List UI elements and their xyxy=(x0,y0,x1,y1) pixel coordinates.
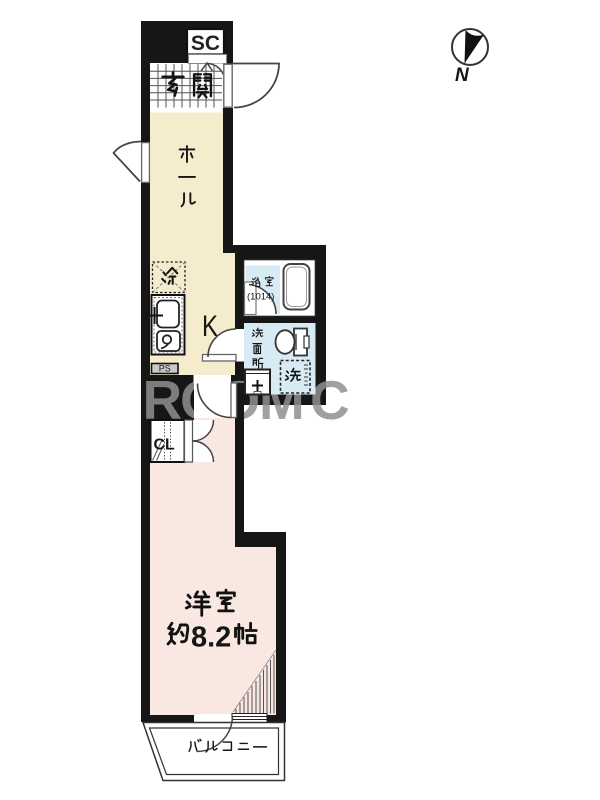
svg-text:N: N xyxy=(455,65,470,86)
svg-text:CL: CL xyxy=(154,437,176,454)
svg-text:(1014): (1014) xyxy=(247,292,274,303)
svg-text:PS: PS xyxy=(159,364,171,374)
svg-text:8.2: 8.2 xyxy=(191,622,231,654)
svg-text:SC: SC xyxy=(191,32,220,55)
svg-text:C: C xyxy=(310,369,350,431)
